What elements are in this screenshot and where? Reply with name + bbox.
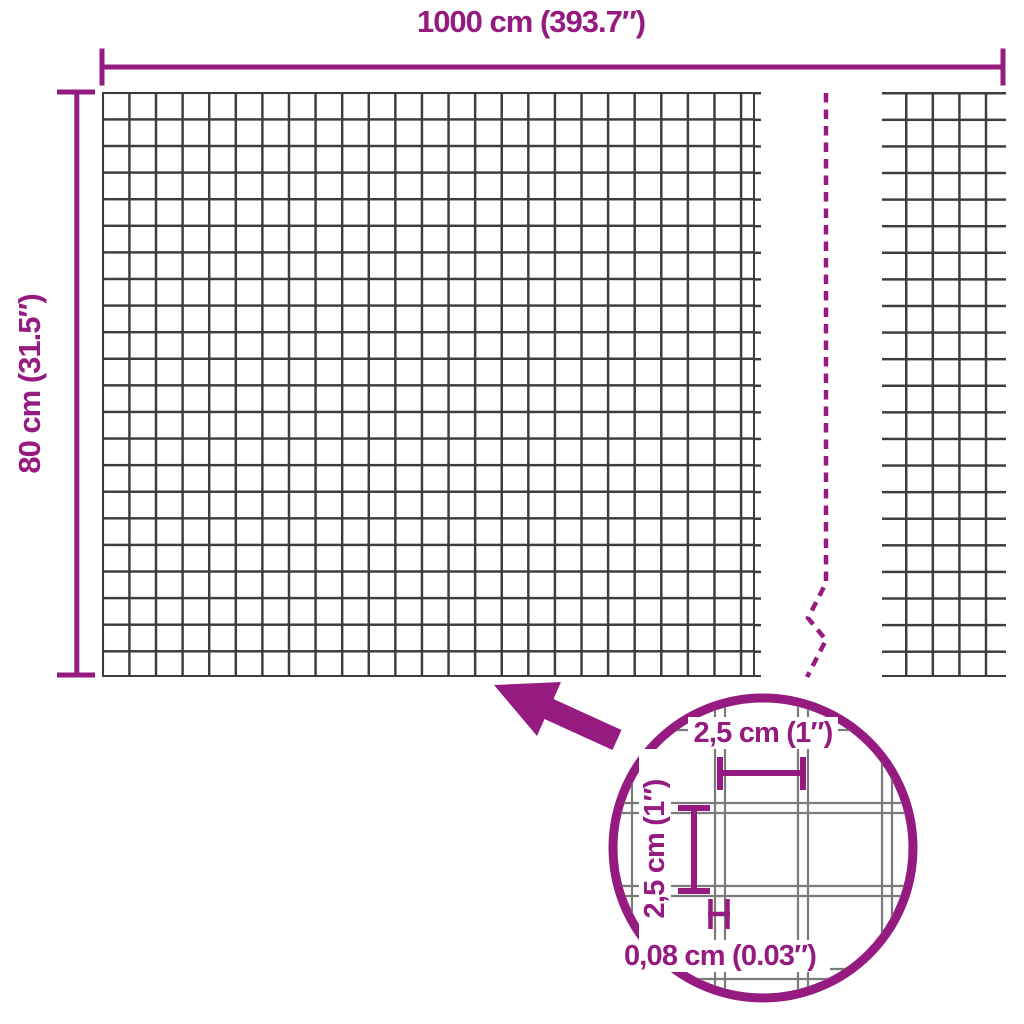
detail-cell-height-label: 2,5 cm (1″)	[639, 749, 671, 949]
width-dimension-tick-right	[1001, 49, 1006, 86]
height-dimension-bar	[74, 92, 79, 675]
detail-cell-width-label: 2,5 cm (1″)	[688, 717, 838, 749]
cell-height-marker	[678, 808, 710, 891]
height-dimension-tick-bottom	[57, 673, 95, 678]
width-dimension-line	[100, 49, 1006, 86]
height-dimension-tick-top	[57, 90, 95, 95]
height-dimension-line	[57, 90, 95, 678]
break-line	[807, 93, 826, 677]
vector-layer	[0, 0, 1024, 1024]
detail-wire-vertical	[882, 694, 892, 1002]
cell-width-marker	[720, 757, 803, 790]
product-dimension-diagram: 1000 cm (393.7″) 80 cm (31.5″) 2,5 cm (1…	[0, 0, 1024, 1024]
detail-wire-thickness-label: 0,08 cm (0.03″)	[610, 940, 830, 972]
wire-thickness-marker	[708, 899, 730, 929]
zoom-arrow-icon	[494, 682, 622, 750]
width-dimension-bar	[102, 65, 1003, 70]
width-dimension-tick-left	[100, 49, 105, 86]
